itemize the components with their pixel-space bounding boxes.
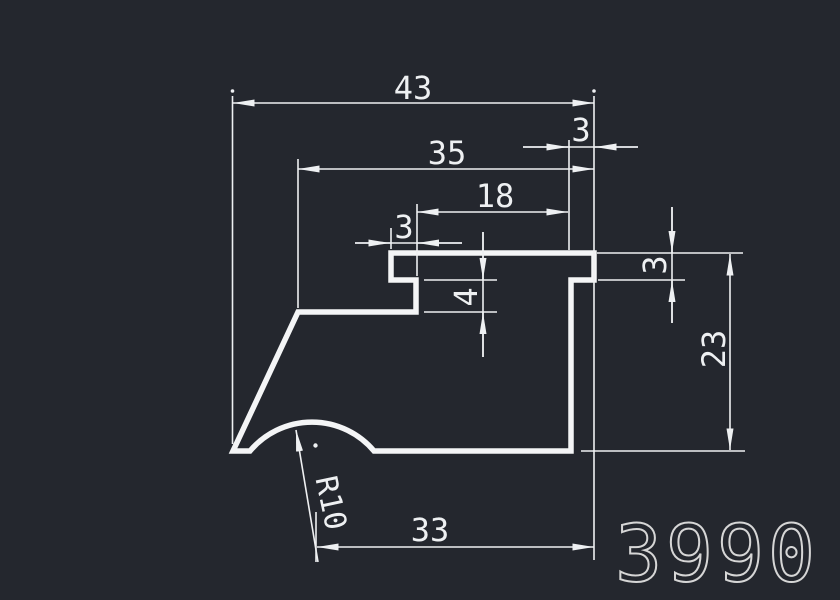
part-number[interactable]: 3990 <box>615 510 819 600</box>
dim-upper-width[interactable]: 35 <box>298 134 594 308</box>
dim-text: 33 <box>411 511 450 549</box>
dim-flange-step-width[interactable]: 3 <box>355 208 462 249</box>
dim-text: 3 <box>571 111 590 149</box>
dim-text: 35 <box>428 134 467 172</box>
cad-viewport[interactable]: 43 35 18 3 3 4 <box>0 0 840 600</box>
drawing-canvas[interactable]: 43 35 18 3 3 4 <box>0 0 840 600</box>
dim-right-notch-width[interactable]: 3 <box>523 111 638 149</box>
dim-text: 43 <box>394 69 433 107</box>
dim-text: 4 <box>447 287 485 306</box>
dim-text: 3 <box>394 208 413 246</box>
dim-text: 3 <box>636 255 674 274</box>
dim-right-notch-depth[interactable]: 3 <box>597 207 743 323</box>
dim-text: R10 <box>308 473 354 533</box>
dim-text: 23 <box>695 330 733 369</box>
dim-bottom-arc-radius[interactable]: R10 <box>296 430 353 562</box>
dim-right-height[interactable]: 23 <box>581 254 745 451</box>
dim-bottom-width[interactable]: 33 <box>316 511 594 562</box>
extension-line-origin-dot <box>592 89 596 93</box>
extension-line-origin-dot <box>231 89 235 93</box>
dim-text: 18 <box>476 177 515 215</box>
radius-center-dot <box>313 443 317 447</box>
profile-outline[interactable] <box>233 253 594 451</box>
